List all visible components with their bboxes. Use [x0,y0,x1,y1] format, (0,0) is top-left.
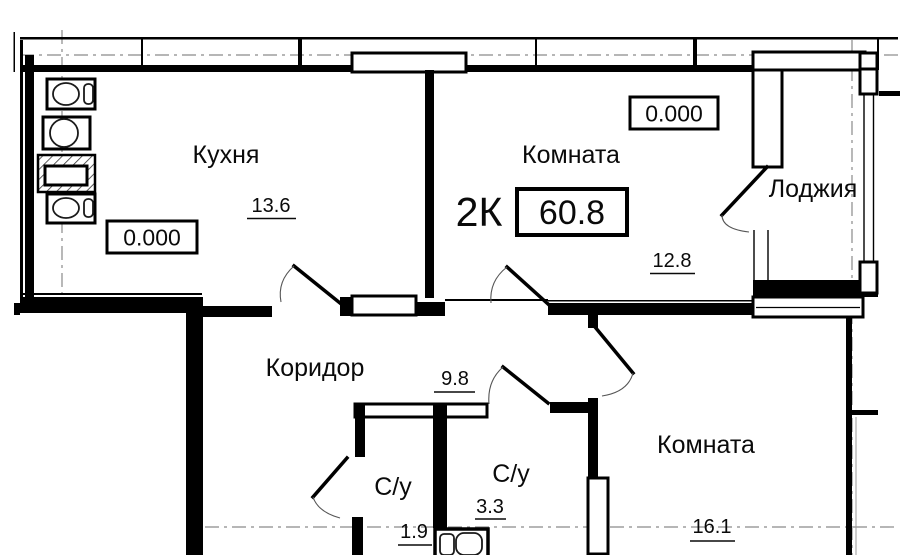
room1-area: 12.8 [653,250,692,272]
floor-plan-canvas: 0.000 0.000 2К 60.8 Кухня 13.6 Комната 1… [0,0,900,555]
bottom-pier [352,296,416,315]
total-area-value: 60.8 [539,194,605,232]
bath-big-door-leaf [503,367,548,403]
balcony-door-leaf [722,167,767,215]
bath-small-door-leaf [313,458,347,497]
glazing-post [860,262,877,293]
corner-tick [14,32,16,72]
bath-small-west-wall [355,404,365,457]
room2-label: Комната [657,431,755,459]
top-wall-seam [298,37,302,65]
counter-inner-box [45,166,87,185]
neighbor-wall-stub [879,91,900,96]
kitchen-room-divider-wall [425,70,434,298]
vent-shaft [588,478,608,554]
room1-door-opening-line [445,299,548,301]
room1-south-wall-line [548,300,755,302]
bottom-pier-cap [415,302,445,316]
bath-small-area: 1.9 [400,521,428,543]
kitchen-label: Кухня [193,141,260,169]
kitchen-south-wall [20,297,203,313]
kitchen-fixtures [38,79,95,223]
kitchen-south-wall-line [20,293,202,295]
loggia-partition-wall [753,70,782,167]
elevation-mark-kitchen: 0.000 [123,225,181,251]
left-wall-outer-line [20,40,23,297]
bath-divider-wall [433,404,447,528]
stove-burner-icon [50,119,78,147]
top-wall-seam [693,37,697,65]
room2-east-wall [846,317,852,555]
room1-label: Комната [522,141,620,169]
glazing-post [860,53,877,69]
apartment-scheme-label: 2К [456,189,503,235]
corridor-area: 9.8 [441,368,469,390]
toilet-bowl-icon [456,533,482,555]
room2-door-jamb [588,315,598,328]
toilet-fixture [435,529,488,555]
loggia-south-wall [753,280,865,297]
bath-small-door-swing-arc [313,497,340,518]
sink-bowl-icon [53,83,79,105]
bath-big-area: 3.3 [476,496,504,518]
corridor-south-east-wall [550,402,598,413]
corridor-threshold-bar [203,306,272,317]
bath-small-door-post [352,517,363,555]
room2-door-swing-arc [602,373,633,396]
top-wall-outer-line [20,37,898,40]
bath-small-label: С/у [374,473,412,501]
toilet-tank-icon [440,534,454,555]
bath-north-wall [355,404,487,417]
bath-big-door-swing-arc [489,367,503,404]
kitchen-area: 13.6 [252,195,291,217]
room1-south-wall [548,303,755,315]
room2-door-leaf [595,327,633,373]
elevation-mark-room1: 0.000 [645,101,703,127]
loggia-label: Лоджия [769,175,858,203]
sink-drain-icon [84,84,93,104]
room2-area: 16.1 [693,516,732,538]
room2-east-stub [846,410,878,415]
floor-plan-page: 0.000 0.000 2К 60.8 Кухня 13.6 Комната 1… [0,0,900,555]
kitchen-door-swing-arc [280,266,294,302]
room1-door-swing-arc [491,267,507,303]
top-wall-seam [535,37,537,65]
bath-big-label: С/у [492,460,530,488]
top-wall-seam [141,37,143,65]
top-wall-pier [352,53,466,72]
loggia-north-wall [753,52,865,70]
sink-drain-icon [84,199,93,217]
wall-stub [14,303,20,315]
sink-bowl-icon [53,198,79,218]
kitchen-door-leaf [294,266,340,303]
balcony-door-swing-arc [722,215,749,232]
left-wall [25,55,34,310]
corridor-label: Коридор [266,354,365,382]
glazing-post [860,69,877,94]
room1-door-leaf [507,267,548,304]
corridor-west-wall [186,297,203,555]
annotations: 0.000 0.000 2К 60.8 [107,97,718,253]
